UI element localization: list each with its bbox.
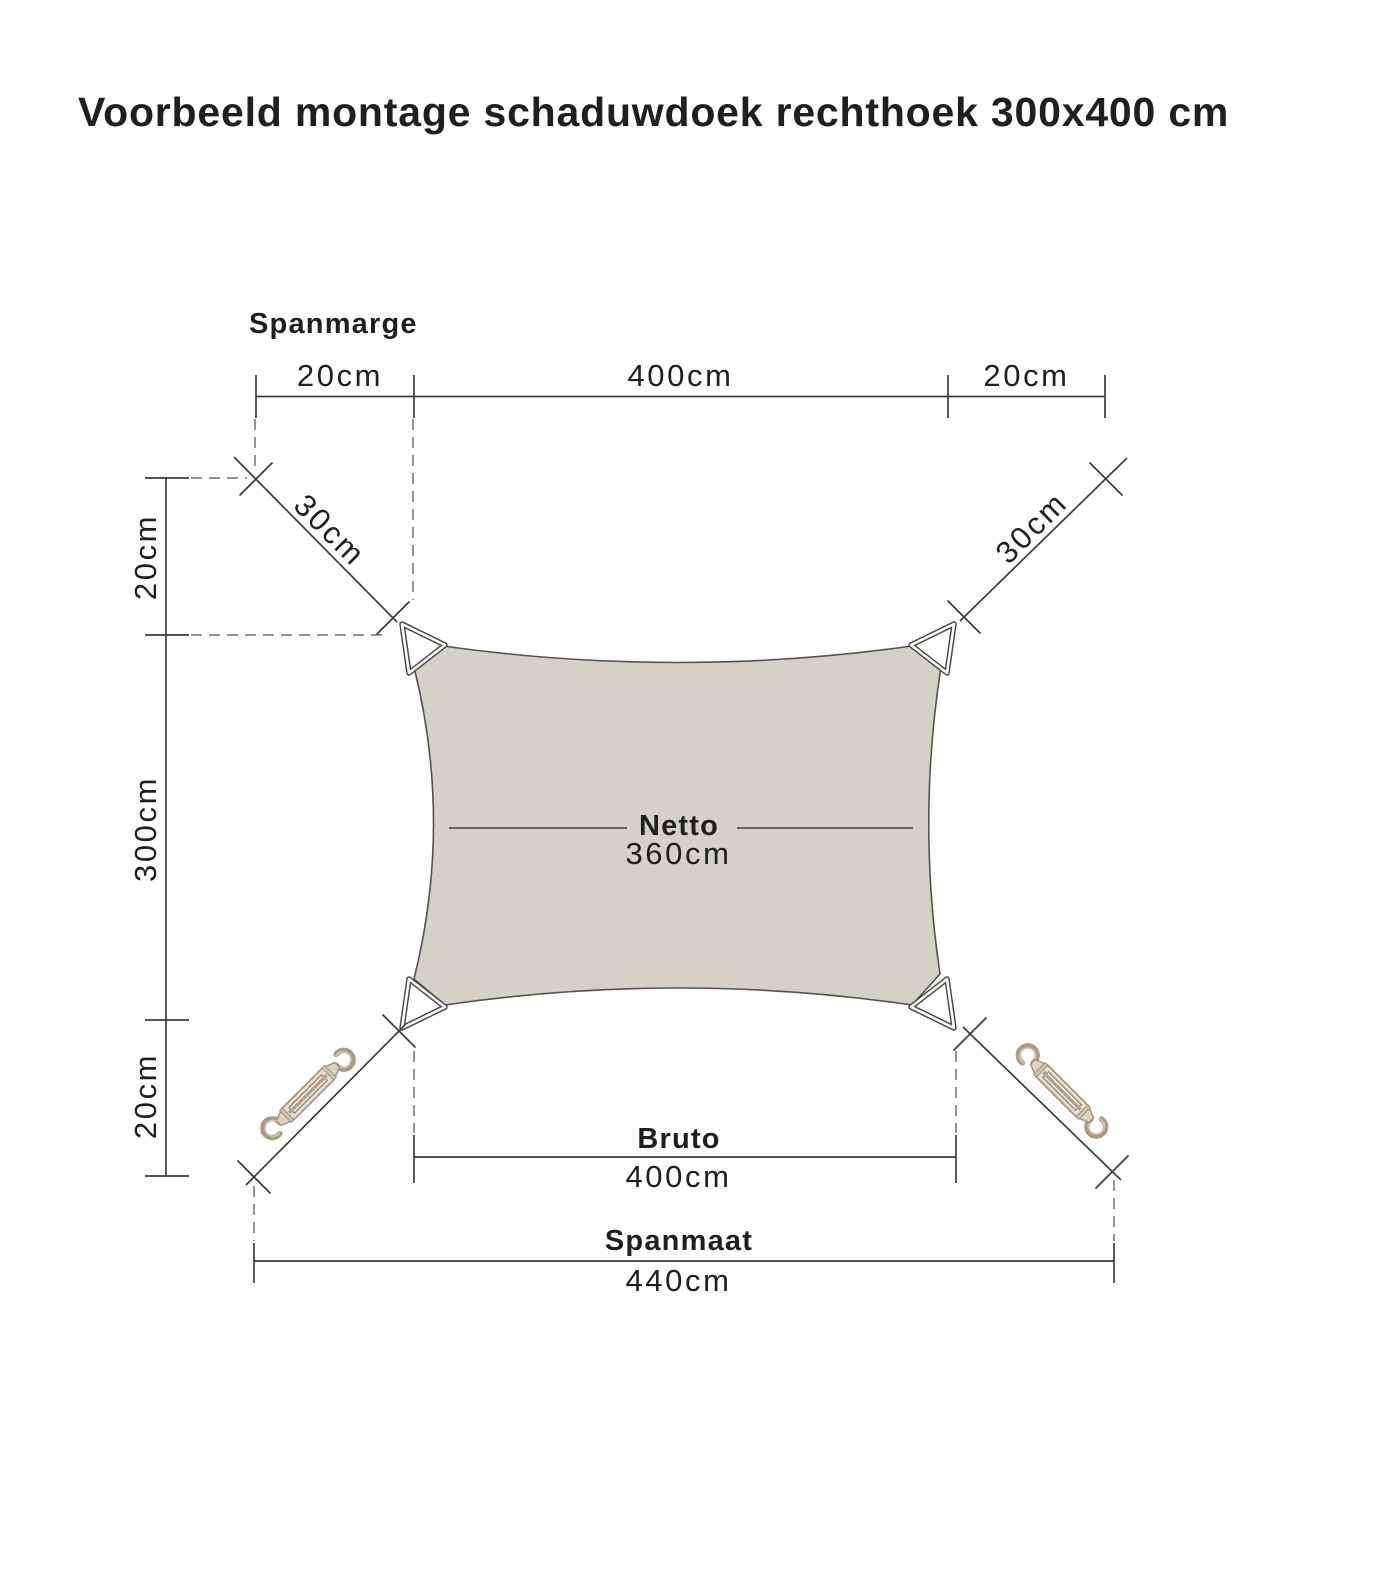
svg-text:Spanmaat: Spanmaat <box>605 1225 753 1257</box>
svg-text:400cm: 400cm <box>625 1159 731 1194</box>
svg-text:400cm: 400cm <box>627 358 733 393</box>
svg-text:20cm: 20cm <box>128 1053 163 1139</box>
svg-text:300cm: 300cm <box>128 776 163 882</box>
svg-text:Bruto: Bruto <box>637 1123 720 1155</box>
svg-text:Voorbeeld montage schaduwdoek: Voorbeeld montage schaduwdoek rechthoek … <box>78 89 1229 135</box>
svg-text:20cm: 20cm <box>297 358 383 393</box>
svg-text:440cm: 440cm <box>625 1263 731 1298</box>
svg-text:360cm: 360cm <box>625 836 731 871</box>
svg-text:20cm: 20cm <box>128 514 163 600</box>
svg-text:20cm: 20cm <box>983 358 1069 393</box>
svg-text:Spanmarge: Spanmarge <box>249 308 418 340</box>
